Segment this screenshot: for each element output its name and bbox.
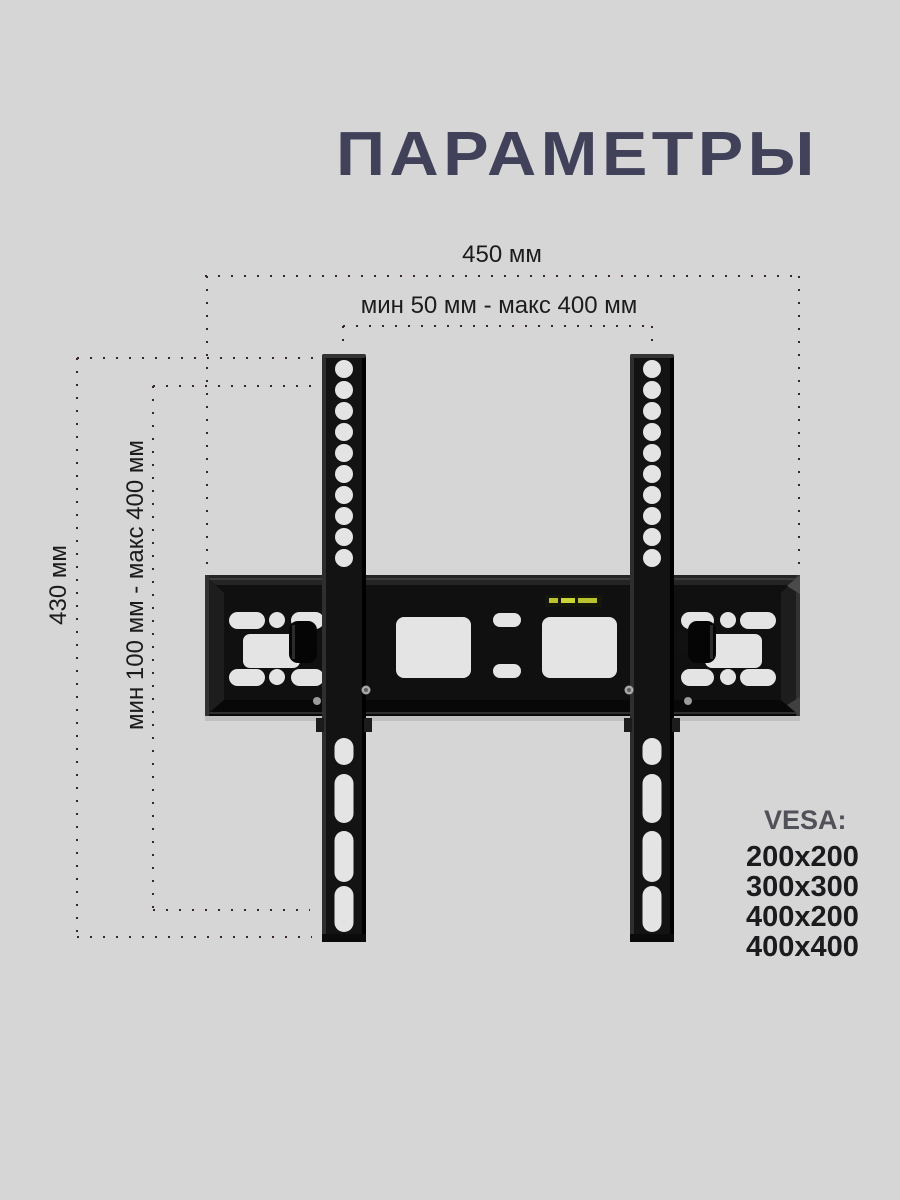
- tv-mount-photo: [205, 354, 800, 942]
- dimension-label-total-width: 450 мм: [462, 243, 542, 267]
- vesa-size-item: 300x300: [746, 872, 876, 902]
- label-sticker: [545, 595, 602, 607]
- vesa-size-item: 400x400: [746, 932, 876, 962]
- vesa-size-item: 400x200: [746, 902, 876, 932]
- vesa-rail-left: [316, 354, 372, 942]
- dimension-label-width-range: мин 50 мм - макс 400 мм: [361, 294, 638, 318]
- dimension-label-height-range: мин 100 мм - макс 400 мм: [124, 440, 148, 730]
- dimension-label-total-height: 430 мм: [47, 545, 71, 625]
- page-background: ПАРАМЕТРЫ: [0, 0, 900, 1200]
- vesa-block: VESA: 200x200 300x300 400x200 400x400: [746, 806, 876, 962]
- vesa-title: VESA:: [746, 806, 876, 836]
- vesa-size-item: 200x200: [746, 842, 876, 872]
- vesa-rail-right: [624, 354, 680, 942]
